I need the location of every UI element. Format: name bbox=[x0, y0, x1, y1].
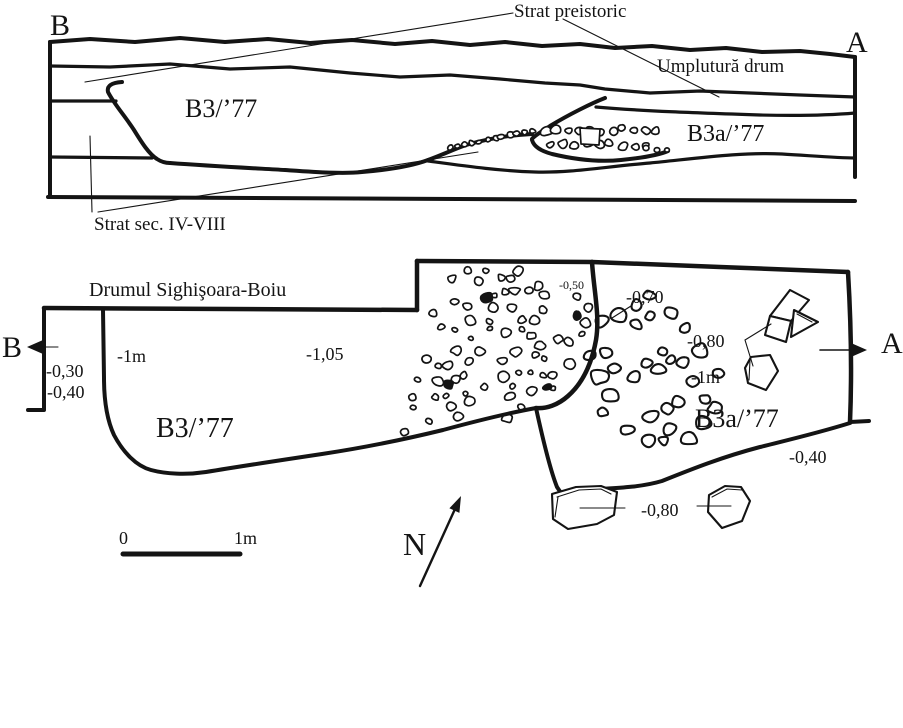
stone bbox=[519, 327, 524, 332]
plan-baulk-left-edge bbox=[28, 308, 44, 410]
stone bbox=[400, 429, 408, 436]
stone bbox=[651, 127, 659, 135]
archaeological-figure: B A Strat preistoric Umplutură drum B3/’… bbox=[0, 0, 903, 728]
plan-end-label-left: B bbox=[2, 331, 22, 364]
plan-road-label: Drumul Sighişoara-Boiu bbox=[89, 279, 286, 301]
leader-line-strat-sec-diagonal bbox=[98, 152, 478, 212]
stone bbox=[465, 315, 476, 325]
stone bbox=[658, 347, 667, 355]
stone bbox=[598, 408, 608, 417]
stone bbox=[438, 324, 445, 330]
figure-canvas: B A Strat preistoric Umplutură drum B3/’… bbox=[0, 0, 903, 728]
north-arrow-icon: N bbox=[403, 496, 461, 586]
stone bbox=[618, 142, 627, 150]
plan-trench-label-b3: B3/’77 bbox=[156, 413, 234, 444]
stone bbox=[654, 148, 660, 153]
stone bbox=[564, 337, 573, 346]
stone bbox=[528, 370, 533, 374]
stone bbox=[448, 275, 456, 283]
stone bbox=[602, 389, 619, 401]
stone bbox=[432, 394, 439, 401]
stone bbox=[501, 328, 511, 337]
stone bbox=[632, 144, 640, 150]
plan-road-edge bbox=[44, 308, 417, 310]
depth-label-divider-top: -0,50 bbox=[559, 278, 584, 292]
stone bbox=[498, 371, 509, 382]
north-arrow-head bbox=[449, 496, 461, 513]
depth-label-b3a-center: -1m bbox=[691, 367, 720, 387]
leader-line-strat-sec-vertical bbox=[90, 136, 92, 212]
stratum-line bbox=[50, 157, 152, 158]
section-stone-fill bbox=[448, 125, 670, 153]
stone bbox=[605, 139, 613, 146]
stone bbox=[460, 371, 467, 379]
stone bbox=[447, 402, 457, 411]
stone bbox=[580, 318, 591, 328]
stone bbox=[651, 364, 667, 374]
plan-trench-label-b3a: B3a/’77 bbox=[695, 404, 779, 433]
stone bbox=[510, 383, 516, 389]
burnt-stone bbox=[444, 380, 454, 389]
stone bbox=[584, 303, 592, 312]
stone bbox=[448, 145, 453, 150]
stone bbox=[488, 303, 498, 313]
stone bbox=[564, 359, 575, 369]
stone bbox=[450, 299, 459, 305]
stone bbox=[642, 435, 655, 447]
stone bbox=[451, 346, 462, 355]
stone bbox=[505, 392, 516, 400]
stone-triangle bbox=[791, 310, 818, 337]
arrow-head bbox=[27, 340, 43, 354]
section-top-surface bbox=[50, 38, 855, 57]
stone bbox=[608, 364, 621, 374]
stone bbox=[527, 387, 537, 396]
stone bbox=[579, 332, 585, 337]
stone bbox=[455, 144, 460, 148]
stone bbox=[513, 131, 520, 136]
stone bbox=[464, 267, 471, 274]
plan-b3a-north-edge bbox=[592, 262, 848, 272]
depth-label-b3-center: -1,05 bbox=[306, 344, 344, 364]
stone-south-east bbox=[708, 486, 750, 528]
stone bbox=[426, 418, 433, 424]
depth-label-baulk-lower: -0,40 bbox=[47, 382, 85, 402]
stone bbox=[534, 341, 545, 349]
stone bbox=[643, 145, 649, 150]
stone bbox=[627, 371, 639, 382]
stone bbox=[469, 140, 475, 145]
stone bbox=[475, 347, 486, 356]
stone bbox=[570, 142, 579, 149]
stone bbox=[610, 127, 618, 135]
stone bbox=[464, 396, 475, 405]
stone bbox=[422, 355, 431, 363]
stone bbox=[540, 373, 546, 378]
stone bbox=[641, 359, 652, 368]
section-view: B A Strat preistoric Umplutură drum B3/’… bbox=[48, 1, 868, 235]
stone bbox=[476, 140, 482, 144]
stone bbox=[513, 266, 523, 276]
stone bbox=[522, 130, 528, 135]
leader-line-prehistoric-left bbox=[85, 13, 513, 82]
stone bbox=[452, 328, 458, 332]
stone bbox=[630, 320, 641, 330]
b3-pit-cut-line bbox=[108, 82, 170, 163]
plan-view: Drumul Sighişoara-Boiu B A -0,30 -0,40 -… bbox=[2, 261, 903, 529]
stone bbox=[409, 394, 416, 401]
stone bbox=[573, 293, 581, 300]
stone bbox=[481, 383, 488, 390]
stone bbox=[453, 412, 463, 421]
stone bbox=[659, 437, 668, 446]
stone bbox=[527, 333, 536, 339]
burnt-stone bbox=[542, 384, 551, 391]
east-arrow-icon bbox=[820, 343, 867, 357]
scale-bar-one-meter: 1m bbox=[234, 528, 257, 548]
stone bbox=[553, 335, 563, 344]
stone bbox=[475, 277, 484, 285]
stone bbox=[518, 316, 526, 323]
depth-label-baulk-upper: -0,30 bbox=[46, 361, 84, 381]
stone bbox=[547, 142, 554, 148]
stone bbox=[498, 274, 505, 281]
stone bbox=[429, 309, 437, 316]
stone bbox=[600, 348, 612, 358]
stone bbox=[550, 125, 560, 134]
north-label: N bbox=[403, 526, 426, 562]
stone bbox=[530, 129, 536, 133]
stone bbox=[509, 288, 521, 295]
stone bbox=[432, 377, 443, 386]
stone bbox=[506, 275, 515, 282]
stone bbox=[463, 391, 468, 396]
stone bbox=[641, 127, 650, 135]
stone bbox=[468, 336, 473, 340]
section-end-label-right: A bbox=[846, 26, 868, 59]
plan-b3-south-edge bbox=[103, 310, 536, 474]
stone bbox=[502, 288, 509, 294]
stone bbox=[580, 128, 600, 145]
depth-label-b3a-upper: -0,70 bbox=[626, 287, 664, 307]
stone bbox=[486, 137, 491, 142]
stone bbox=[672, 396, 685, 407]
stone bbox=[497, 358, 507, 365]
stone bbox=[465, 358, 473, 366]
stone bbox=[700, 395, 711, 403]
depth-label-south-stones: -0,80 bbox=[641, 500, 679, 520]
stone bbox=[410, 405, 416, 410]
stone bbox=[621, 426, 635, 435]
stone bbox=[462, 142, 468, 147]
stone bbox=[487, 326, 492, 330]
stone bbox=[497, 135, 504, 140]
stone bbox=[534, 281, 542, 290]
stone bbox=[525, 287, 533, 294]
stone bbox=[642, 411, 658, 422]
depth-label-b3a-southeast: -0,40 bbox=[789, 447, 827, 467]
plan-b3a-east-stub bbox=[850, 421, 869, 422]
stone bbox=[645, 311, 655, 320]
scale-bar: 0 1m bbox=[119, 528, 257, 554]
stone bbox=[665, 307, 678, 318]
stone-slab-facet bbox=[765, 316, 791, 342]
stone bbox=[542, 356, 547, 361]
stone bbox=[516, 370, 522, 375]
stone bbox=[618, 125, 625, 131]
stone bbox=[539, 306, 547, 314]
stone bbox=[676, 357, 688, 368]
section-trench-label-b3a: B3a/’77 bbox=[687, 121, 764, 147]
stone bbox=[591, 370, 609, 385]
stone bbox=[443, 393, 449, 398]
arrow-head bbox=[851, 343, 867, 357]
stone bbox=[548, 372, 557, 379]
stone bbox=[665, 148, 670, 152]
pit-slope-line bbox=[428, 134, 532, 160]
stone bbox=[463, 303, 472, 310]
plan-b3-north-edge bbox=[417, 261, 592, 262]
label-umplutura-drum: Umplutură drum bbox=[657, 56, 784, 77]
stone bbox=[664, 423, 677, 435]
section-trench-label-b3: B3/’77 bbox=[185, 94, 257, 123]
stone bbox=[483, 268, 489, 273]
stone bbox=[539, 291, 549, 299]
stone bbox=[486, 319, 492, 325]
stone bbox=[507, 304, 516, 312]
section-end-label-left: B bbox=[50, 9, 70, 42]
stratum-line bbox=[596, 107, 855, 115]
burnt-stone bbox=[480, 292, 493, 303]
plan-end-label-right: A bbox=[881, 327, 903, 360]
stone bbox=[558, 139, 567, 148]
label-strat-preistoric: Strat preistoric bbox=[514, 1, 626, 22]
scale-bar-zero: 0 bbox=[119, 528, 128, 548]
stone bbox=[414, 377, 420, 382]
stone bbox=[565, 128, 572, 134]
stone bbox=[681, 432, 697, 444]
burnt-stone bbox=[573, 311, 581, 321]
stone bbox=[630, 127, 637, 133]
stone bbox=[510, 347, 522, 357]
label-strat-sec-iv-viii: Strat sec. IV-VIII bbox=[94, 214, 226, 235]
plan-divider-lower bbox=[536, 408, 563, 496]
plan-b3a-east-edge bbox=[848, 272, 851, 422]
depth-label-b3a-stones: -0,80 bbox=[687, 331, 725, 351]
stone bbox=[435, 363, 441, 368]
west-arrow-icon bbox=[27, 340, 58, 354]
depth-label-b3-west: -1m bbox=[117, 346, 146, 366]
stone bbox=[442, 361, 452, 369]
stone bbox=[532, 352, 539, 358]
stone bbox=[666, 355, 675, 364]
stone bbox=[529, 316, 539, 325]
